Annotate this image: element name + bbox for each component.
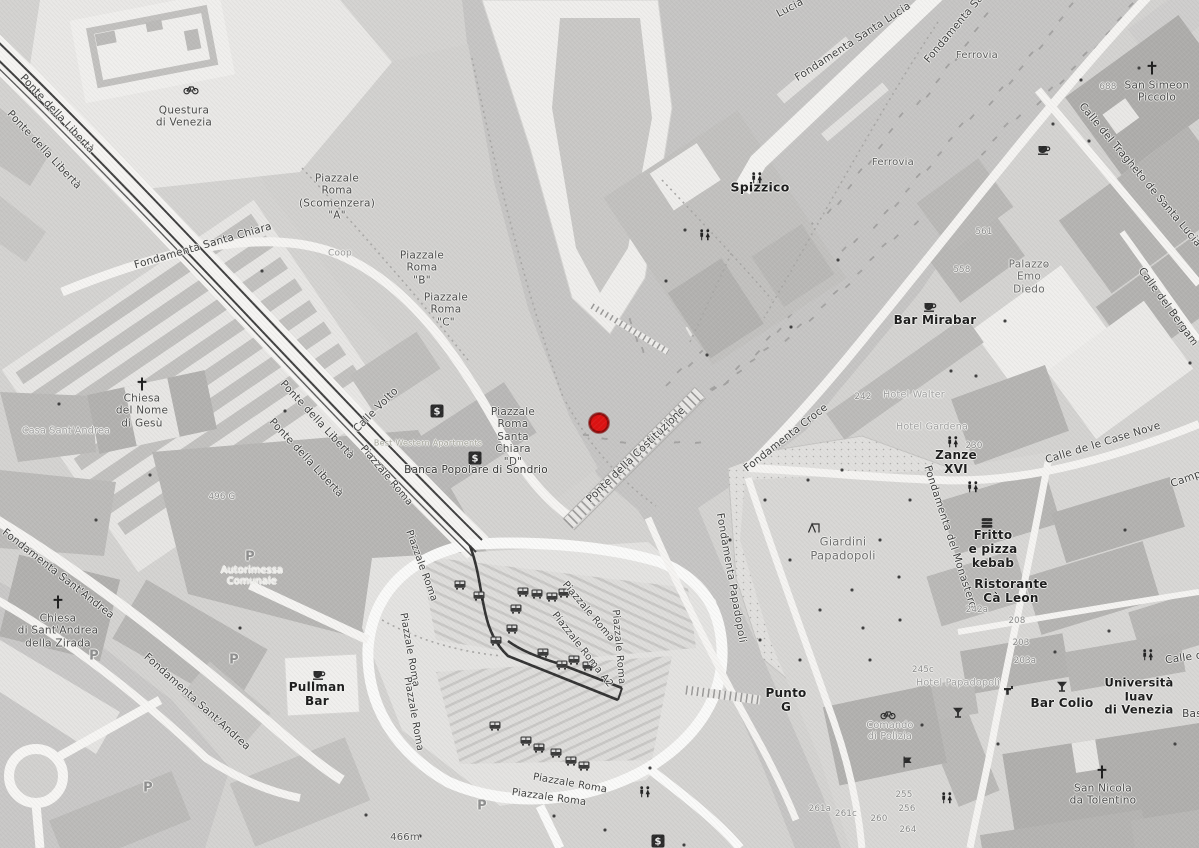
map-label: Palazzo Emo Diedo xyxy=(1009,258,1050,295)
parking-label: P xyxy=(229,652,239,667)
map-label: Piazzale Roma xyxy=(403,529,440,604)
parking-label: P xyxy=(143,780,153,795)
map-label: 261c xyxy=(835,809,857,819)
map-label: Pullman Bar xyxy=(289,680,345,708)
map-label: Piazzale Roma xyxy=(511,787,587,809)
map-canvas[interactable]: $$$ LuciaFondamenta Santa LuciaFondament… xyxy=(0,0,1199,848)
map-label: Fondamenta Santa Chiara xyxy=(133,220,273,271)
map-label: Fondamenta Sant'Andrea xyxy=(141,651,252,753)
map-label: Chiesa del Nome di Gesù xyxy=(116,392,168,429)
map-label: Fondamenta Croce xyxy=(742,401,831,474)
map-label: Calle de le Case Nove xyxy=(1044,420,1162,467)
map-label: Coop xyxy=(328,249,352,260)
map-label: 242 xyxy=(855,392,872,402)
map-label: 261a xyxy=(809,804,831,814)
map-label: 561 xyxy=(976,227,993,237)
map-label: Piazzale Roma xyxy=(609,609,627,685)
map-label: Hotel Walter xyxy=(883,389,945,400)
map-label: Università Iuav di Venezia xyxy=(1104,677,1173,718)
map-label: San Nicola da Tolentino xyxy=(1070,783,1137,808)
map-label: 245c xyxy=(912,665,934,675)
map-label: Banca Popolare di Sondrio xyxy=(404,464,548,476)
map-label: Ponte della Libertà xyxy=(4,108,83,192)
map-label: 558 xyxy=(954,265,971,275)
map-label: Best Western Apartments xyxy=(374,438,482,447)
map-label: 260 xyxy=(871,814,888,824)
map-label: 208 xyxy=(1009,616,1026,626)
map-label: Piazzale Roma "B" xyxy=(400,249,444,286)
map-label: Hotel Papadopoli xyxy=(916,677,1000,688)
map-label: Piazzale Roma xyxy=(357,443,414,508)
location-marker[interactable] xyxy=(589,413,609,433)
map-label: Chiesa di Sant'Andrea della Zirada xyxy=(18,612,99,649)
map-label: Questura di Venezia xyxy=(156,105,212,130)
map-label: Fondamenta Papadopoli xyxy=(713,512,748,644)
map-label: Casa Sant'Andrea xyxy=(22,425,110,436)
map-label: Ferrovia xyxy=(956,50,998,62)
parking-label: P xyxy=(89,648,99,663)
map-label: 230 xyxy=(966,441,983,451)
map-label: Fondamenta Santa Lucia xyxy=(793,0,914,84)
map-label: Calle del Tragheto de Santa Lucia xyxy=(1076,101,1199,250)
map-label: Piazzale Roma A2 xyxy=(549,610,615,690)
map-label: Fritto e pizza kebab xyxy=(969,528,1018,570)
map-label: 203a xyxy=(1014,656,1036,666)
map-label: Fondamenta Sant'Andrea xyxy=(0,526,117,621)
map-label: Ponte della Libertà xyxy=(17,72,96,156)
map-label: 688 xyxy=(1100,82,1117,92)
map-label: 255 xyxy=(896,790,913,800)
map-label: Piazzale Roma (Scomenzera) "A" xyxy=(299,172,375,222)
map-label: Punto G xyxy=(765,686,806,714)
map-label: San Simeon Piccolo xyxy=(1125,80,1190,105)
map-label: Piazzale Roma xyxy=(397,612,422,688)
map-label: Ponte della Libertà xyxy=(266,416,345,500)
parking-label: P xyxy=(245,549,255,564)
map-label: Piazzale Roma xyxy=(559,579,616,644)
map-label: Piazzale Roma xyxy=(532,772,608,797)
map-label: 203 xyxy=(1013,638,1030,648)
map-label: Lucia xyxy=(774,0,805,20)
map-label: 242a xyxy=(966,605,988,615)
map-label: Bar Colio xyxy=(1030,696,1093,710)
map-label: Comando di Polizia xyxy=(866,720,913,742)
parking-label: P xyxy=(477,798,487,813)
map-label: Calle d xyxy=(1164,649,1199,667)
map-label: Ponte della Libertà xyxy=(277,378,356,462)
map-label: Fondamenta Sa xyxy=(922,0,986,66)
map-label: Hotel Gardena xyxy=(896,421,968,432)
map-label: 466m xyxy=(390,832,420,844)
map-label: Bar Mirabar xyxy=(894,313,977,327)
map-label: Campo xyxy=(1169,466,1199,491)
map-label: 496 G xyxy=(209,492,236,502)
map-label: 256 xyxy=(899,804,916,814)
map-label: Spizzico xyxy=(730,181,789,196)
map-label: Ferrovia xyxy=(872,157,914,169)
map-label: Calle Volto xyxy=(351,385,401,435)
map-label: Piazzale Roma Santa Chiara "D" xyxy=(491,406,535,468)
map-label: Calle del Bergam xyxy=(1135,265,1199,348)
map-label: 264 xyxy=(900,825,917,835)
map-label: Piazzale Roma "C" xyxy=(424,291,468,328)
map-label: Zanze XVI xyxy=(935,448,977,476)
map-label: Piazzale Roma xyxy=(401,676,426,752)
map-label: Bas xyxy=(1182,708,1199,720)
map-label: Ristorante Cà Leon xyxy=(974,577,1047,605)
map-label: Fondamenta del Monastero xyxy=(921,464,979,610)
map-label: Autorimessa Comunale xyxy=(221,565,283,587)
map-label: Giardini Papadopoli xyxy=(810,535,875,562)
